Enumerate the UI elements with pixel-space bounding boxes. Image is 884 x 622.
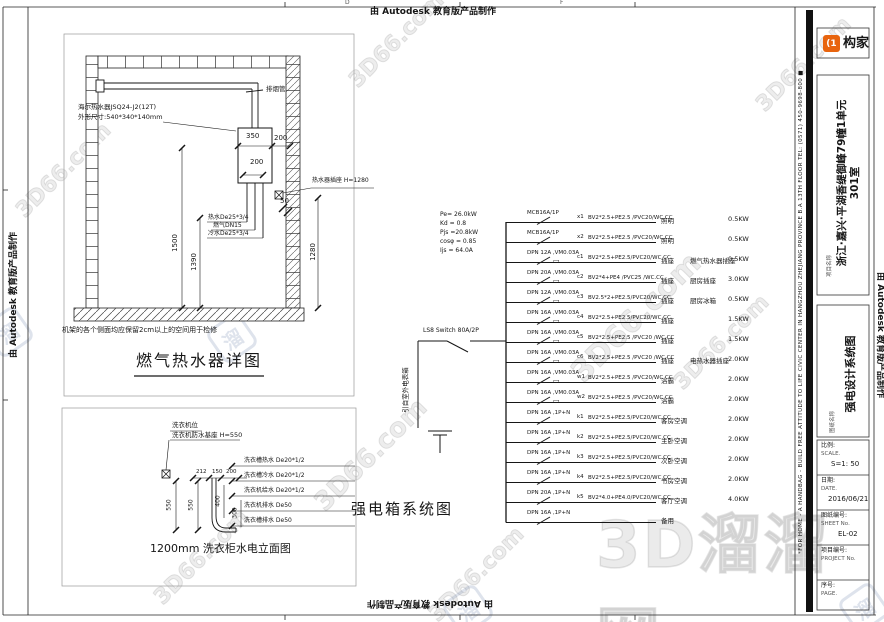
load-name: 次卧空调 [661, 455, 687, 465]
circuit-id: k4 [577, 474, 584, 480]
rcd-symbol: ▭ [553, 318, 560, 325]
laundry-base-label: 洗衣机防水基座 H=550 [172, 432, 242, 439]
dim-200b: 200 [250, 159, 263, 167]
autodesk-banner-right: 由 Autodesk 教育版产品制作 [874, 272, 884, 398]
load-detail: 电热水器插座 [690, 355, 729, 365]
laundry-position-label: 洗衣机位 [172, 422, 198, 429]
heater-model-line1: 海尔热水器JSQ24-J2(12T) [78, 104, 156, 111]
heater-detail-title: 燃气热水器详图 [136, 352, 262, 370]
circuit-row: ▭ DPN 12A ,VM0.03A c3 BV2.5*2+PE2.5/PVC2… [506, 289, 764, 309]
breaker-symbol [537, 357, 550, 365]
calc-line: Kd = 0.8 [440, 219, 478, 228]
breaker-label: MCB16A/1P [527, 230, 559, 236]
circuit-id: c3 [577, 294, 584, 300]
breaker-label: DPN 16A ,VM0.03A [527, 370, 579, 376]
circuit-wire [506, 382, 656, 383]
dim-1500: 1500 [172, 234, 180, 252]
page-label-en: PAGE. [821, 591, 837, 597]
load-power: 2.0KW [728, 375, 749, 383]
cable-spec: BV2*2.5+PE2.5/PVC20/WC.CC [588, 255, 671, 261]
breaker-label: DPN 16A ,1P+N [527, 430, 570, 436]
date-label: 日期: [821, 478, 835, 485]
circuit-wire [506, 422, 656, 423]
sheet-number-label-en: SHEET No. [821, 521, 850, 527]
project-name-line2: 301室 [849, 76, 862, 291]
heater-model-line2: 外形尺寸:540*340*140mm [78, 114, 163, 121]
breaker-symbol [537, 377, 550, 385]
cable-spec: BV2*2.5+PE2.5/PVC20/WC.CC [588, 455, 671, 461]
pipe-cold-label: 冷水De25*3/4 [208, 231, 249, 238]
load-power: 3.0KW [728, 275, 749, 283]
project-number-label: 项目编号: [821, 548, 847, 555]
circuit-id: w2 [577, 394, 585, 400]
load-power: 2.0KW [728, 395, 749, 403]
circuit-row: DPN 20A ,1P+N k5 BV2*4.0+PE4.0/PVC20/WC.… [506, 489, 764, 509]
dim-1280: 1280 [310, 243, 318, 261]
circuit-row: ▭ DPN 16A ,VM0.03A c5 BV2*2.5+PE2.5 /PVC… [506, 329, 764, 349]
watermark: 3D66.com [149, 505, 254, 610]
breaker-label: DPN 16A ,1P+N [527, 510, 570, 516]
cable-spec: BV2*2.5+PE2.5/PVC20/WC.CC [588, 315, 671, 321]
load-detail: 厨房冰箱 [690, 295, 716, 305]
breaker-label: DPN 16A ,VM0.03A [527, 350, 579, 356]
circuit-wire [506, 302, 656, 303]
rcd-symbol: ▭ [553, 298, 560, 305]
dim-550a: 550 [167, 499, 174, 510]
heater-socket-label: 热水器插座 H=1280 [312, 178, 369, 185]
circuit-row: MCB16A/1P x1 BV2*2.5+PE2.5 /PVC20/WC.CC … [506, 209, 764, 229]
load-power: 0.5KW [728, 235, 749, 243]
pipe-hot-label: 热水De25*3/4 [208, 215, 249, 222]
circuit-row: DPN 16A ,1P+N k1 BV2*2.5+PE2.5/PVC20/WC.… [506, 409, 764, 429]
cable-spec: BV2*2.5+PE2.5 /PVC20/WC.CC [588, 395, 673, 401]
calc-line: Pe= 26.0kW [440, 210, 478, 219]
calc-line: Ijs = 64.0A [440, 246, 478, 255]
drawing-sheet: 3D66.com 3D66.com 3D66.com 3D66.com 3D66… [0, 0, 884, 622]
laundry-pipe-label: 洗衣机给水 De20*1/2 [244, 488, 305, 495]
load-name: 插座 [661, 315, 674, 325]
circuit-id: c4 [577, 314, 584, 320]
sheet-number-value: EL-02 [838, 531, 858, 539]
calc-line: cosφ = 0.85 [440, 237, 478, 246]
drawing-name: 强电设计系统图 [845, 336, 857, 413]
cable-spec: BV2*4.0+PE4.0/PVC20/WC.CC [588, 495, 671, 501]
breaker-label: DPN 12A ,VM0.03A [527, 290, 579, 296]
load-name: 客厅空调 [661, 495, 687, 505]
load-power: 0.5KW [728, 295, 749, 303]
circuit-id: x2 [577, 234, 584, 240]
breaker-label: DPN 20A ,1P+N [527, 490, 570, 496]
circuit-row: MCB16A/1P x2 BV2*2.5+PE2.5 /PVC20/WC.CC … [506, 229, 764, 249]
circuit-wire [506, 242, 656, 243]
rcd-symbol: ▭ [553, 378, 560, 385]
dim-200: 200 [226, 469, 237, 475]
autodesk-banner-bottom: 由 Autodesk 教育版产品制作 [367, 597, 493, 607]
circuit-row: ▭ DPN 16A ,VM0.03A c6 BV2*2.5+PE2.5 /PVC… [506, 349, 764, 369]
breaker-label: DPN 16A ,1P+N [527, 470, 570, 476]
load-power: 4.0KW [728, 495, 749, 503]
circuit-id: k2 [577, 434, 584, 440]
load-power: 2.0KW [728, 475, 749, 483]
scale-label: 比例: [821, 443, 835, 450]
load-name: 照明 [661, 235, 674, 245]
stamp-logo: 溜 [836, 580, 884, 622]
circuit-wire [506, 402, 656, 403]
circuit-wire [506, 282, 656, 283]
breaker-label: DPN 16A ,VM0.03A [527, 390, 579, 396]
cable-spec: BV2*2.5+PE2.5 /PVC20/WC.CC [588, 215, 673, 221]
breaker-symbol [537, 417, 550, 425]
load-name: 浴霸 [661, 395, 674, 405]
dim-200a: 200 [274, 135, 287, 143]
dim-300: 300 [233, 507, 240, 518]
watermark: 3D66.com [11, 118, 116, 223]
circuit-row: DPN 16A ,1P+N k2 BV2*2.5+PE2.5/PVC20/WC.… [506, 429, 764, 449]
load-power: 1.5KW [728, 315, 749, 323]
breaker-symbol [537, 257, 550, 265]
circuit-wire [506, 222, 656, 223]
cable-spec: BV2.5*2+PE2.5/PVC20/WC.CC [588, 295, 671, 301]
laundry-pipe-label: 洗衣槽冷水 De20*1/2 [244, 473, 305, 480]
circuit-id: w1 [577, 374, 585, 380]
autodesk-banner-top: 由 Autodesk 教育版产品制作 [370, 8, 496, 18]
dim-550b: 550 [189, 499, 196, 510]
cable-spec: BV2*2.5+PE2.5 /PVC20/WC.CC [588, 235, 673, 241]
rcd-symbol: ▭ [553, 278, 560, 285]
circuit-id: k3 [577, 454, 584, 460]
breaker-symbol [537, 397, 550, 405]
exhaust-pipe-label: 排烟管 [266, 86, 286, 93]
breaker-label: MCB16A/1P [527, 210, 559, 216]
autodesk-banner-left: 由 Autodesk 教育版产品制作 [10, 232, 20, 358]
circuit-id: c6 [577, 354, 584, 360]
circuit-row: DPN 16A ,1P+N k3 BV2*2.5+PE2.5/PVC20/WC.… [506, 449, 764, 469]
cable-spec: BV2*2.5+PE2.5/PVC20/WC.CC [588, 415, 671, 421]
pipe-gas-label: 燃气DN15 [213, 223, 242, 230]
breaker-symbol [537, 317, 550, 325]
project-number-label-en: PROJECT No. [821, 556, 856, 562]
circuit-rows: MCB16A/1P x1 BV2*2.5+PE2.5 /PVC20/WC.CC … [506, 209, 764, 529]
circuit-row: DPN 16A ,1P+N k4 BV2*2.5+PE2.5/PVC20/WC.… [506, 469, 764, 489]
load-power: 2.0KW [728, 435, 749, 443]
dim-350: 350 [246, 133, 259, 141]
dim-150: 150 [212, 469, 223, 475]
date-label-en: DATE. [821, 486, 837, 492]
load-calculation: Pe= 26.0kW Kd = 0.8 Pjs =20.8kW cosφ = 0… [440, 210, 478, 255]
breaker-symbol [537, 217, 550, 225]
titleblock-side-text: *FOR HOME - A HANDBAG - BUILD FREE ATTIT… [798, 70, 804, 554]
load-power: 0.5KW [728, 215, 749, 223]
circuit-row: ▭ DPN 16A ,VM0.03A w1 BV2*2.5+PE2.5 /PVC… [506, 369, 764, 389]
circuit-row: ▭ DPN 12A ,VM0.03A c1 BV2*2.5+PE2.5/PVC2… [506, 249, 764, 269]
cable-spec: BV2*2.5+PE2.5/PVC20/WC.CC [588, 435, 671, 441]
date-value: 2016/06/21 [828, 496, 868, 504]
sheet-number-label: 图纸编号: [821, 513, 847, 520]
load-power: 0.5KW [728, 255, 749, 263]
breaker-label: DPN 12A ,VM0.03A [527, 250, 579, 256]
load-name: 备用 [661, 515, 674, 525]
rcd-symbol: ▭ [553, 338, 560, 345]
circuit-id: k1 [577, 414, 584, 420]
scale-label-en: SCALE. [821, 451, 840, 457]
breaker-symbol [537, 437, 550, 445]
breaker-symbol [537, 237, 550, 245]
incoming-feeder-label: 引自室外电表箱 [402, 367, 409, 413]
circuit-wire [506, 362, 656, 363]
page-label: 序号: [821, 583, 835, 590]
brand-logo-icon: (1 [823, 35, 840, 52]
circuit-id: c5 [577, 334, 584, 340]
dim-400: 400 [216, 495, 223, 506]
load-name: 客房空调 [661, 415, 687, 425]
load-name: 插座 [661, 355, 674, 365]
laundry-pipe-label: 洗衣机排水 De50 [244, 503, 292, 510]
ruler-letter: F [560, 0, 563, 7]
load-name: 浴霸 [661, 375, 674, 385]
heater-note: 机架的各个侧面均应保留2cm以上的空间用于检修 [62, 327, 217, 335]
breaker-symbol [537, 337, 550, 345]
circuit-row: ▭ DPN 20A ,VM0.03A c2 BV2*4+PE4 /PVC25 /… [506, 269, 764, 289]
breaker-symbol [537, 517, 550, 525]
dim-212: 212 [196, 469, 207, 475]
breaker-symbol [537, 457, 550, 465]
cable-spec: BV2*2.5+PE2.5 /PVC20/WC.CC [588, 375, 673, 381]
circuit-wire [506, 322, 656, 323]
circuit-row: DPN 16A ,1P+N 备用 [506, 509, 764, 529]
circuit-id: c1 [577, 254, 584, 260]
circuit-wire [506, 502, 656, 503]
breaker-label: DPN 16A ,VM0.03A [527, 310, 579, 316]
load-detail: 厨房插座 [690, 275, 716, 285]
ruler-letter: D [345, 0, 350, 7]
calc-line: Pjs =20.8kW [440, 228, 478, 237]
watermark: 3D66.com [309, 393, 434, 518]
rcd-symbol: ▭ [553, 358, 560, 365]
circuit-id: c2 [577, 274, 584, 280]
circuit-wire [506, 482, 656, 483]
breaker-symbol [537, 477, 550, 485]
laundry-pipe-label: 洗衣槽热水 De20*1/2 [244, 458, 305, 465]
dim-50: 50 [280, 198, 289, 206]
breaker-label: DPN 16A ,VM0.03A [527, 330, 579, 336]
laundry-detail-title: 1200mm 洗衣柜水电立面图 [150, 543, 291, 555]
load-power: 2.0KW [728, 455, 749, 463]
laundry-pipe-label: 洗衣槽排水 De50 [244, 518, 292, 525]
circuit-wire [506, 262, 656, 263]
project-name: 浙江·嘉兴·平湖香缇御峰79幢1单元 301室 [836, 76, 862, 291]
circuit-wire [506, 462, 656, 463]
rcd-symbol: ▭ [553, 258, 560, 265]
load-name: 插座 [661, 295, 674, 305]
circuit-row: ▭ DPN 16A ,VM0.03A w2 BV2*2.5+PE2.5 /PVC… [506, 389, 764, 409]
project-name-label: 项目名称 [827, 255, 833, 277]
breaker-symbol [537, 277, 550, 285]
circuit-wire [506, 522, 656, 523]
circuit-row: ▭ DPN 16A ,VM0.03A c4 BV2*2.5+PE2.5/PVC2… [506, 309, 764, 329]
load-power: 1.5KW [728, 335, 749, 343]
load-name: 照明 [661, 215, 674, 225]
load-name: 主卧空调 [661, 435, 687, 445]
breaker-symbol [537, 497, 550, 505]
load-name: 书房空调 [661, 475, 687, 485]
breaker-label: DPN 16A ,1P+N [527, 450, 570, 456]
circuit-wire [506, 342, 656, 343]
breaker-label: DPN 16A ,1P+N [527, 410, 570, 416]
drawing-name-label: 图纸名称 [830, 411, 836, 433]
load-name: 插座 [661, 255, 674, 265]
load-power: 2.0KW [728, 415, 749, 423]
panel-diagram-title: 强电箱系统图 [351, 501, 453, 518]
circuit-id: k5 [577, 494, 584, 500]
cable-spec: BV2*4+PE4 /PVC25 /WC.CC [588, 275, 664, 281]
project-name-line1: 浙江·嘉兴·平湖香缇御峰79幢1单元 [836, 76, 849, 291]
cable-spec: BV2*2.5+PE2.5/PVC20/WC.CC [588, 475, 671, 481]
brand-name: 构家 [843, 37, 869, 51]
breaker-symbol [537, 297, 550, 305]
breaker-label: DPN 20A ,VM0.03A [527, 270, 579, 276]
circuit-wire [506, 442, 656, 443]
load-name: 插座 [661, 275, 674, 285]
dim-1390: 1390 [191, 253, 199, 271]
circuit-id: x1 [577, 214, 584, 220]
scale-value: S=1: 50 [831, 461, 859, 469]
main-switch-label: LS8 Switch 80A/2P [423, 328, 479, 335]
rcd-symbol: ▭ [553, 398, 560, 405]
load-power: 2.0KW [728, 355, 749, 363]
load-name: 插座 [661, 335, 674, 345]
